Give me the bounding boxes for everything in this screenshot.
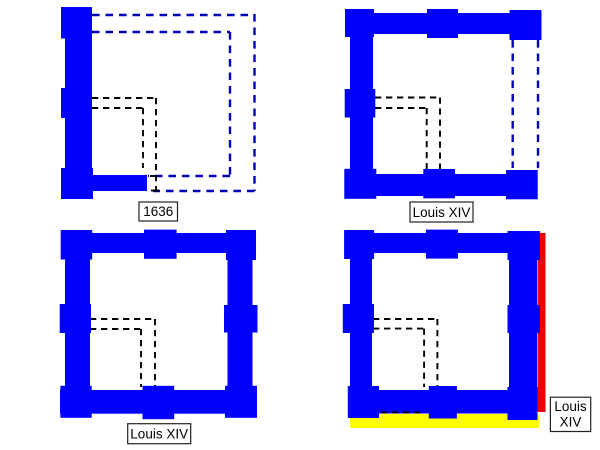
svg-text:Louis: Louis (554, 399, 587, 414)
svg-text:Louis XIV: Louis XIV (130, 427, 188, 442)
svg-text:Louis XIV: Louis XIV (413, 205, 471, 220)
svg-text:1636: 1636 (143, 204, 173, 219)
svg-text:XIV: XIV (560, 415, 582, 430)
